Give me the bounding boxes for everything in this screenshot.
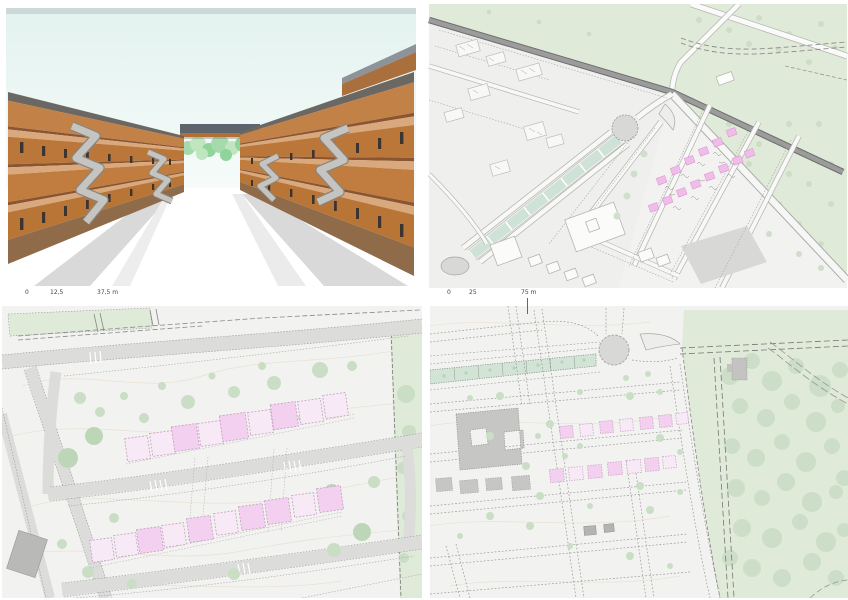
site-plan-context <box>430 306 848 598</box>
panel-axonometric-site-plan <box>428 4 848 288</box>
scalebar-perspective: 0 12,5 37,5 m <box>25 289 155 313</box>
scale-tick-label: 25 <box>469 289 477 296</box>
roundabout-south <box>441 257 469 275</box>
scale-tick-label: 75 m <box>521 289 536 296</box>
axonometric-plan <box>428 4 848 288</box>
horizon-band <box>6 8 416 14</box>
site-plan-detail <box>2 306 422 598</box>
scale-tick-label: 0 <box>25 289 29 296</box>
scale-tick-label: 12,5 <box>50 289 63 296</box>
scale-tick-label: 0 <box>447 289 451 296</box>
scalebar-axonometric: 0 25 75 m <box>447 289 557 313</box>
panel-site-plan-context <box>430 306 848 598</box>
scale-tick-label: 37,5 m <box>97 289 118 296</box>
perspective-render <box>6 8 416 286</box>
scale-tick-mark <box>527 298 528 314</box>
architectural-drawing-board: 0 12,5 37,5 m 0 25 75 m <box>0 0 848 600</box>
panel-site-plan-detail <box>2 306 422 598</box>
panel-street-perspective-render <box>6 8 416 286</box>
